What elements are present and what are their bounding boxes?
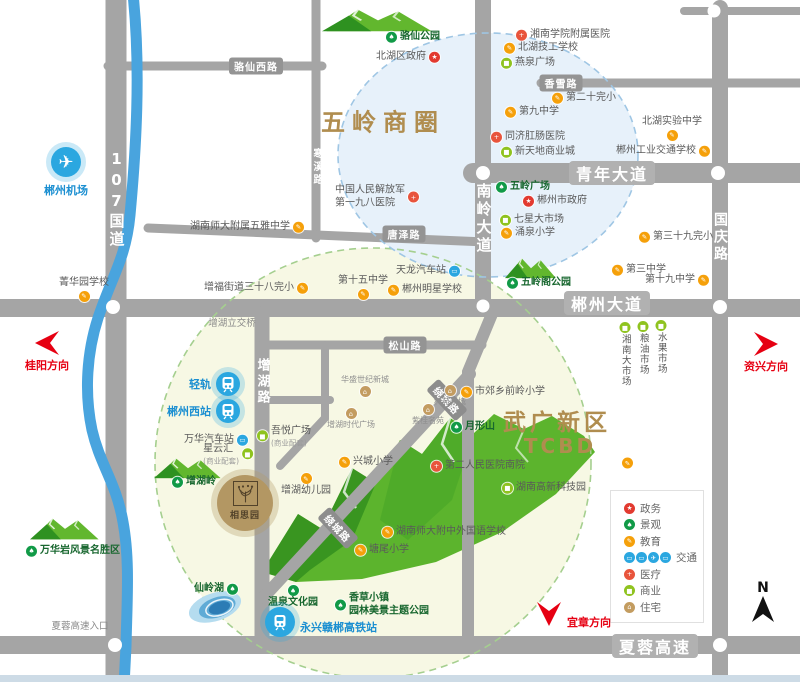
road-label-9: 南岭大道 bbox=[476, 183, 491, 255]
road-label-6: 夏蓉高速 bbox=[612, 634, 698, 658]
marker-五岭广场: ♠五岭广场 bbox=[496, 181, 550, 194]
marker-label: 华盛世纪新城 bbox=[341, 375, 389, 385]
residential-icon: ⌂ bbox=[445, 385, 456, 396]
marker-label-line1: 吾悦广场 bbox=[271, 425, 311, 438]
marker-增福街道三十八完小: 增福街道三十八完小✎ bbox=[204, 282, 308, 295]
direction-label-资兴方向: 资兴方向 bbox=[744, 358, 788, 374]
marker-label: 五岭广场 bbox=[510, 181, 550, 194]
marker-七星大市场: ■七星大市场 bbox=[500, 214, 564, 227]
edu-icon: ✎ bbox=[293, 222, 304, 233]
legend-label-edu: 教育 bbox=[640, 534, 661, 549]
marker-label: 月形山 bbox=[465, 421, 495, 434]
residential-icon: ⌂ bbox=[624, 602, 635, 613]
marker-label: 骆仙公园 bbox=[400, 31, 440, 44]
landscape-icon: ♠ bbox=[624, 519, 635, 530]
mountain-wanhuayan bbox=[30, 518, 99, 539]
residential-icon: ⌂ bbox=[423, 404, 434, 415]
marker-label: 湘南大市场 bbox=[620, 334, 630, 387]
marker-label: 湖南师大附属五雅中学 bbox=[190, 221, 290, 234]
direction-label-桂阳方向: 桂阳方向 bbox=[25, 357, 69, 373]
marker-label: 粮油市场 bbox=[638, 333, 648, 375]
marker-label-line2: 第一九八医院 bbox=[335, 197, 405, 210]
zone-title-tcbd: TCBD bbox=[524, 434, 596, 458]
marker-label-line2: (商业配套) bbox=[203, 456, 239, 465]
hub-郴州西站-icon bbox=[216, 399, 240, 423]
legend-label-gov: 政务 bbox=[640, 501, 661, 516]
north-arrow-icon bbox=[750, 596, 776, 622]
marker-label: 北湖技工学校 bbox=[518, 42, 578, 55]
commercial-icon: ■ bbox=[624, 585, 635, 596]
landscape-icon: ♠ bbox=[451, 422, 462, 433]
transport-icon: ▭ bbox=[624, 552, 635, 563]
marker-粮油市场: ■粮油市场 bbox=[638, 321, 649, 375]
marker-湖南师大附中外国语学校: ✎湖南师大附中外国语学校 bbox=[382, 526, 506, 539]
marker-label: 七星大市场 bbox=[514, 214, 564, 227]
bottom-strip bbox=[0, 675, 800, 682]
marker-label: 万华岩风景名胜区 bbox=[40, 545, 120, 558]
marker-label: 湖南高新科技园 bbox=[516, 482, 586, 495]
landscape-icon: ♠ bbox=[496, 182, 507, 193]
marker-兴城小学: ✎兴城小学 bbox=[339, 456, 393, 469]
legend-label-commercial: 商业 bbox=[640, 583, 661, 598]
transport-icon: ▭ bbox=[636, 552, 647, 563]
road-label-5: 郴州大道 bbox=[564, 291, 650, 315]
marker-五岭阁公园: ♠五岭阁公园 bbox=[507, 277, 571, 290]
marker-温泉文化园: ♠温泉文化园 bbox=[268, 585, 318, 610]
marker-菁华园学校: 菁华园学校✎ bbox=[59, 277, 109, 302]
edu-icon: ✎ bbox=[339, 457, 350, 468]
medical-icon: + bbox=[408, 192, 419, 203]
legend-label-transport: 交通 bbox=[676, 550, 697, 565]
direction-label-宜章方向: 宜章方向 bbox=[567, 614, 611, 630]
marker-label: 郴州市政府 bbox=[537, 195, 587, 208]
marker-label: 涌泉小学 bbox=[515, 227, 555, 240]
marker-label-line2: (商业配套) bbox=[271, 438, 311, 447]
landscape-icon: ♠ bbox=[227, 584, 238, 595]
edu-icon: ✎ bbox=[622, 458, 633, 469]
legend-item-medical: +医疗 bbox=[624, 566, 703, 583]
marker-第三十九完小: ✎第三十九完小 bbox=[639, 231, 713, 244]
commercial-icon: ■ bbox=[502, 483, 513, 494]
commercial-icon: ■ bbox=[242, 449, 253, 460]
road-label-8: 寒溪路 bbox=[311, 148, 321, 187]
marker-label: 兴城小学 bbox=[353, 456, 393, 469]
edu-icon: ✎ bbox=[501, 228, 512, 239]
edu-icon: ✎ bbox=[504, 43, 515, 54]
hub-永兴赣郴高铁站-label: 永兴赣郴高铁站 bbox=[300, 619, 377, 635]
landscape-icon: ♠ bbox=[26, 546, 37, 557]
marker-label: 仙岭湖 bbox=[194, 583, 224, 596]
marker-label: 第二十完小 bbox=[566, 92, 616, 105]
hub-永兴赣郴高铁站-icon bbox=[265, 607, 295, 637]
hub-郴州机场-label: 郴州机场 bbox=[44, 182, 88, 198]
edu-icon: ✎ bbox=[505, 107, 516, 118]
transport-icon: ▭ bbox=[449, 266, 460, 277]
medical-icon: + bbox=[491, 132, 502, 143]
marker-同济肛肠医院: +同济肛肠医院 bbox=[491, 131, 565, 144]
marker-吾悦广场: ■吾悦广场(商业配套) bbox=[257, 425, 311, 447]
marker-增湖幼儿园: ✎增湖幼儿园 bbox=[281, 473, 331, 498]
road-label-7: 107国道 bbox=[109, 150, 124, 249]
marker-增湖岭: ♠增湖岭 bbox=[172, 476, 216, 489]
marker-label: 星云汇(商业配套) bbox=[203, 443, 239, 465]
edu-icon: ✎ bbox=[79, 291, 90, 302]
direction-arrow-资兴方向-icon bbox=[754, 331, 778, 361]
map-legend: ★政务♠景观✎教育▭▭✈▭交通+医疗■商业⌂住宅 bbox=[610, 490, 704, 623]
marker-第二人民医院南院: +第二人民医院南院 bbox=[431, 460, 525, 473]
project-name: 相思园 bbox=[230, 508, 260, 521]
road-label-0: 骆仙西路 bbox=[229, 58, 283, 75]
marker-中国人民解放军: 中国人民解放军第一九八医院+ bbox=[335, 185, 419, 210]
marker-label-line2: 园林美景主题公园 bbox=[349, 605, 429, 618]
marker-骆仙公园: ♠骆仙公园 bbox=[386, 31, 440, 44]
marker-label: 市郊乡前岭小学 bbox=[475, 386, 545, 399]
marker-市郊乡前岭小学: ✎市郊乡前岭小学 bbox=[461, 386, 545, 399]
edu-icon: ✎ bbox=[639, 232, 650, 243]
legend-item-commercial: ■商业 bbox=[624, 583, 703, 600]
direction-arrow-宜章方向-icon bbox=[536, 602, 562, 630]
edu-icon: ✎ bbox=[297, 283, 308, 294]
edu-icon: ✎ bbox=[461, 387, 472, 398]
residential-icon: ⌂ bbox=[360, 386, 371, 397]
marker-label: 第二人民医院南院 bbox=[445, 460, 525, 473]
marker-label: 增湖岭 bbox=[186, 476, 216, 489]
mountain-luoxian-park bbox=[322, 10, 432, 32]
hub-轻轨-label: 轻轨 bbox=[189, 376, 211, 392]
marker-label: 增湖时代广场 bbox=[327, 420, 375, 430]
commercial-icon: ■ bbox=[501, 58, 512, 69]
legend-item-transport: ▭▭✈▭交通 bbox=[624, 550, 703, 567]
legend-label-medical: 医疗 bbox=[640, 567, 661, 582]
edu-icon: ✎ bbox=[667, 130, 678, 141]
gov-icon: ★ bbox=[624, 503, 635, 514]
marker-label: 吾悦广场(商业配套) bbox=[271, 425, 311, 447]
road-label-11: 增湖路 bbox=[256, 358, 269, 406]
commercial-icon: ■ bbox=[620, 322, 631, 333]
marker-label: 增湖幼儿园 bbox=[281, 485, 331, 498]
marker-新天地商业城: ■新天地商业城 bbox=[501, 146, 575, 159]
legend-item-landscape: ♠景观 bbox=[624, 517, 703, 534]
marker-label: 塘尾小学 bbox=[369, 544, 409, 557]
edu-icon: ✎ bbox=[552, 93, 563, 104]
legend-label-landscape: 景观 bbox=[640, 517, 661, 532]
marker-燕泉广场: ■燕泉广场 bbox=[501, 57, 555, 70]
marker-香草小镇: ♠香草小镇园林美景主题公园 bbox=[335, 593, 429, 618]
commercial-icon: ■ bbox=[501, 147, 512, 158]
road-label-2: 唐泽路 bbox=[383, 226, 426, 243]
note-增湖立交桥: 增湖立交桥 bbox=[208, 315, 256, 329]
marker-label-line1: 中国人民解放军 bbox=[335, 185, 405, 198]
transport-icon: ▭ bbox=[660, 552, 671, 563]
hub-轻轨-icon bbox=[216, 372, 240, 396]
legend-item-edu: ✎教育 bbox=[624, 533, 703, 550]
marker-label: 郴州工业交通学校 bbox=[616, 145, 696, 158]
hub-郴州西站-label: 郴州西站 bbox=[167, 403, 211, 419]
landscape-icon: ♠ bbox=[335, 600, 346, 611]
marker-华盛世纪新城: 华盛世纪新城⌂ bbox=[341, 375, 389, 397]
marker-涌泉小学: ✎涌泉小学 bbox=[501, 227, 555, 240]
direction-arrow-桂阳方向-icon bbox=[35, 330, 59, 360]
edu-icon: ✎ bbox=[698, 275, 709, 286]
marker-label: 第九中学 bbox=[519, 106, 559, 119]
marker-label: 第十九中学 bbox=[645, 274, 695, 287]
edu-icon: ✎ bbox=[301, 473, 312, 484]
compass: N bbox=[748, 580, 778, 626]
marker-第十五中学: 第十五中学✎ bbox=[338, 275, 388, 300]
marker-label: 五岭阁公园 bbox=[521, 277, 571, 290]
marker-郴州明星学校: ✎郴州明星学校 bbox=[388, 284, 462, 297]
marker-湖南师大附属五雅中学: 湖南师大附属五雅中学✎ bbox=[190, 221, 304, 234]
marker-label: 第十五中学 bbox=[338, 275, 388, 288]
edu-icon: ✎ bbox=[358, 289, 369, 300]
landscape-icon: ♠ bbox=[172, 477, 183, 488]
zone-title-wuguang: 武广新区 bbox=[503, 403, 611, 437]
marker-label: 第三十九完小 bbox=[653, 231, 713, 244]
edu-icon: ✎ bbox=[388, 285, 399, 296]
road-label-3: 松山路 bbox=[384, 337, 427, 354]
marker-第九中学: ✎第九中学 bbox=[505, 106, 559, 119]
marker-第十九中学: 第十九中学✎ bbox=[645, 274, 709, 287]
marker-label: 天龙汽车站 bbox=[396, 265, 446, 278]
marker-星云汇: 星云汇(商业配套)■ bbox=[203, 443, 253, 465]
medical-icon: + bbox=[624, 569, 635, 580]
project-logo-core: 相思园 bbox=[217, 475, 273, 531]
gov-icon: ★ bbox=[429, 52, 440, 63]
medical-icon: + bbox=[431, 461, 442, 472]
marker-天龙汽车站: 天龙汽车站▭ bbox=[396, 265, 460, 278]
marker-label: 菁华园学校 bbox=[59, 277, 109, 290]
marker-label: 湖南师大附中外国语学校 bbox=[396, 526, 506, 539]
marker-湘南学院附属医院: +湘南学院附属医院 bbox=[516, 29, 610, 42]
commercial-icon: ■ bbox=[638, 321, 649, 332]
marker-郴州工业交通学校: 郴州工业交通学校✎ bbox=[616, 145, 710, 158]
marker-label: 湘南学院附属医院 bbox=[530, 29, 610, 42]
zone-title-wuling: 五岭商圈 bbox=[321, 103, 445, 138]
edu-icon: ✎ bbox=[355, 545, 366, 556]
road-label-4: 青年大道 bbox=[569, 161, 655, 185]
marker-北湖区政府: 北湖区政府★ bbox=[376, 51, 440, 64]
edu-icon: ✎ bbox=[382, 527, 393, 538]
marker-增湖时代广场: ⌂增湖时代广场 bbox=[327, 408, 375, 430]
marker-北湖实验中学: 北湖实验中学✎ bbox=[642, 116, 702, 141]
marker-label: 紫桂名苑 bbox=[412, 416, 444, 426]
marker-label: 郴州明星学校 bbox=[402, 284, 462, 297]
medical-icon: + bbox=[516, 30, 527, 41]
gov-icon: ★ bbox=[523, 196, 534, 207]
landscape-icon: ♠ bbox=[386, 32, 397, 43]
commercial-icon: ■ bbox=[656, 320, 667, 331]
marker-郴州市政府: ★郴州市政府 bbox=[523, 195, 587, 208]
marker-label: 中国人民解放军第一九八医院 bbox=[335, 185, 405, 210]
marker-水果市场: ■水果市场 bbox=[656, 320, 667, 374]
marker-北湖技工学校: ✎北湖技工学校 bbox=[504, 42, 578, 55]
marker-湘南大市场: ■湘南大市场 bbox=[620, 322, 631, 387]
legend-item-residential: ⌂住宅 bbox=[624, 599, 703, 616]
marker-label: 香草小镇园林美景主题公园 bbox=[349, 593, 429, 618]
edu-icon: ✎ bbox=[699, 146, 710, 157]
edu-icon: ✎ bbox=[624, 536, 635, 547]
marker-label-line1: 星云汇 bbox=[203, 443, 239, 456]
chenzhou-location-map: 五岭商圈 武广新区 TCBD bbox=[0, 0, 800, 682]
residential-icon: ⌂ bbox=[346, 408, 357, 419]
edu-icon: ✎ bbox=[612, 265, 623, 276]
road-label-1: 香雪路 bbox=[540, 75, 583, 92]
marker-label: 燕泉广场 bbox=[515, 57, 555, 70]
tree-icon bbox=[233, 481, 258, 506]
marker-label: 北湖区政府 bbox=[376, 51, 426, 64]
transport-icon: ✈ bbox=[648, 552, 659, 563]
marker-月形山: ♠月形山 bbox=[451, 421, 495, 434]
marker-label: 北湖实验中学 bbox=[642, 116, 702, 129]
marker-紫桂名苑: ⌂紫桂名苑 bbox=[412, 404, 444, 426]
legend-transport-icons: ▭▭✈▭ bbox=[624, 552, 671, 563]
marker-湖南高新科技园: ■湖南高新科技园 bbox=[502, 482, 586, 495]
landscape-icon: ♠ bbox=[288, 585, 299, 596]
landscape-icon: ♠ bbox=[507, 278, 518, 289]
legend-label-residential: 住宅 bbox=[640, 600, 661, 615]
marker-label-line1: 香草小镇 bbox=[349, 593, 429, 606]
compass-n-label: N bbox=[748, 580, 778, 596]
commercial-icon: ■ bbox=[500, 215, 511, 226]
note-夏蓉高速入口: 夏蓉高速入口 bbox=[51, 618, 108, 632]
marker-label: 同济肛肠医院 bbox=[505, 131, 565, 144]
marker-edu: ✎ bbox=[622, 458, 633, 469]
road-label-10: 国庆路 bbox=[713, 212, 727, 263]
marker-第二十完小: ✎第二十完小 bbox=[552, 92, 616, 105]
hub-郴州机场-icon: ✈ bbox=[51, 147, 81, 177]
marker-万华岩风景名胜区: ♠万华岩风景名胜区 bbox=[26, 545, 120, 558]
marker-label: 水果市场 bbox=[656, 332, 666, 374]
legend-item-gov: ★政务 bbox=[624, 500, 703, 517]
marker-label: 增福街道三十八完小 bbox=[204, 282, 294, 295]
marker-仙岭湖: 仙岭湖♠ bbox=[194, 583, 238, 596]
marker-塘尾小学: ✎塘尾小学 bbox=[355, 544, 409, 557]
marker-label: 新天地商业城 bbox=[515, 146, 575, 159]
commercial-icon: ■ bbox=[257, 431, 268, 442]
